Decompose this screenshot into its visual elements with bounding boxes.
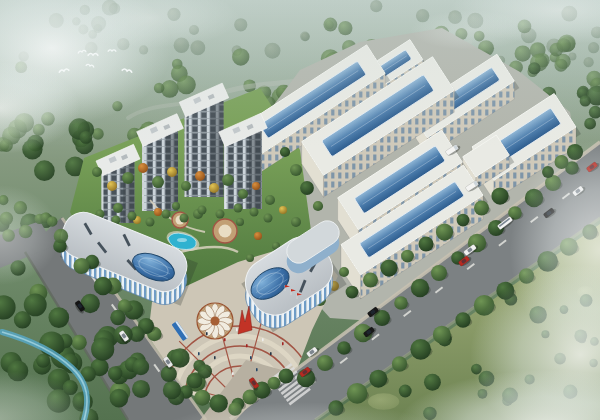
atmospheric-haze — [0, 0, 600, 420]
haze — [0, 0, 600, 420]
aerial-rendering-stage — [0, 0, 600, 420]
aerial-rendering — [0, 0, 600, 420]
